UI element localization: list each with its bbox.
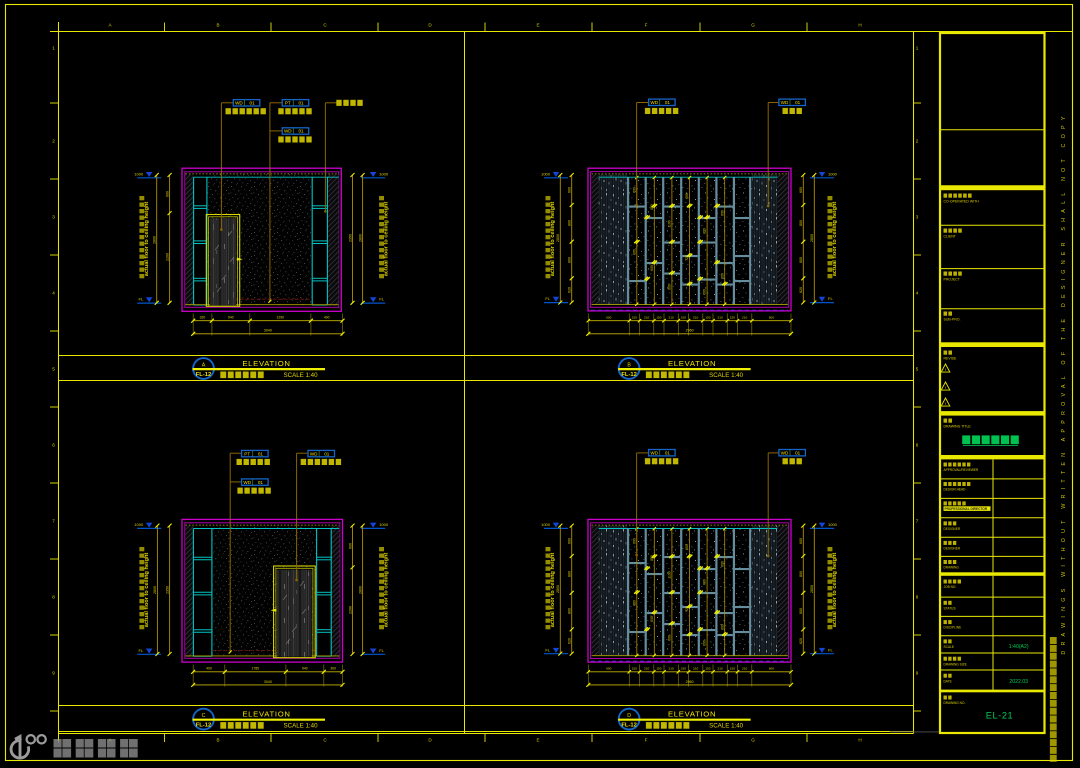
svg-text:320: 320 [200, 316, 206, 320]
svg-text:150: 150 [730, 667, 735, 671]
svg-text:600: 600 [668, 284, 672, 290]
svg-text:600: 600 [703, 640, 707, 646]
svg-text:C: C [202, 713, 206, 719]
svg-text:2022.03: 2022.03 [1009, 679, 1028, 685]
svg-text:1000: 1000 [134, 171, 144, 176]
svg-text:DISCIPLINE: DISCIPLINE [944, 626, 962, 630]
svg-text:150: 150 [705, 316, 710, 320]
svg-text:2800: 2800 [810, 234, 814, 242]
svg-text:2: 2 [52, 139, 55, 144]
svg-text:E: E [536, 738, 539, 743]
svg-text:SCALE 1:40: SCALE 1:40 [709, 722, 744, 729]
svg-text:1785: 1785 [252, 667, 260, 671]
svg-text:01: 01 [258, 451, 264, 456]
svg-text:2960: 2960 [686, 680, 694, 684]
svg-text:600: 600 [650, 616, 654, 622]
svg-text:ELEVATION: ELEVATION [242, 359, 290, 368]
svg-text:FL: FL [379, 297, 384, 302]
svg-text:800: 800 [568, 257, 572, 263]
svg-text:600: 600 [799, 187, 803, 193]
svg-text:1000: 1000 [134, 522, 144, 527]
svg-text:DRAWING NO.: DRAWING NO. [944, 701, 966, 705]
svg-text:4: 4 [52, 291, 55, 296]
svg-text:800: 800 [799, 220, 803, 226]
svg-text:actual floor to ceiling height: actual floor to ceiling height [550, 202, 556, 277]
svg-text:1100: 1100 [668, 220, 672, 227]
svg-text:ELEVATION: ELEVATION [668, 710, 716, 719]
svg-text:800: 800 [568, 220, 572, 226]
svg-text:1: 1 [916, 46, 919, 51]
svg-text:actual floor to ceiling height: actual floor to ceiling height [550, 553, 556, 628]
svg-text:F: F [645, 23, 648, 28]
svg-text:FL: FL [828, 647, 833, 652]
svg-text:150: 150 [632, 316, 637, 320]
svg-text:210: 210 [669, 316, 674, 320]
svg-text:1000: 1000 [541, 522, 551, 527]
svg-text:150: 150 [681, 316, 686, 320]
svg-text:150: 150 [681, 667, 686, 671]
svg-text:800: 800 [720, 273, 724, 279]
svg-text:800: 800 [799, 571, 803, 577]
svg-text:FL-12: FL-12 [196, 723, 211, 729]
svg-text:210: 210 [644, 316, 649, 320]
svg-text:800: 800 [568, 571, 572, 577]
svg-text:150: 150 [705, 667, 710, 671]
svg-text:400: 400 [206, 667, 212, 671]
svg-text:5: 5 [52, 367, 55, 372]
svg-text:PT: PT [244, 451, 250, 456]
svg-text:9: 9 [916, 671, 919, 676]
svg-text:210: 210 [693, 667, 698, 671]
svg-text:01: 01 [665, 100, 671, 105]
svg-text:G: G [751, 23, 755, 28]
svg-text:800: 800 [632, 249, 636, 255]
svg-text:SCALE 1:40: SCALE 1:40 [283, 372, 318, 379]
svg-text:5: 5 [916, 367, 919, 372]
svg-text:PROFESSIONAL DIRECTOR: PROFESSIONAL DIRECTOR [945, 507, 988, 511]
svg-text:620: 620 [799, 287, 803, 293]
svg-text:FL-12: FL-12 [621, 372, 636, 378]
svg-text:STATUS: STATUS [944, 606, 956, 610]
svg-text:800: 800 [799, 608, 803, 614]
svg-text:01: 01 [665, 450, 671, 455]
svg-text:JOB NO.: JOB NO. [944, 585, 957, 589]
svg-text:3040: 3040 [264, 329, 272, 333]
svg-text:FL: FL [139, 648, 144, 653]
svg-text:1000: 1000 [379, 522, 389, 527]
svg-text:600: 600 [632, 538, 636, 544]
svg-text:actual floor to ceiling height: actual floor to ceiling height [832, 202, 838, 277]
svg-text:600: 600 [799, 538, 803, 544]
svg-text:600: 600 [165, 191, 169, 197]
svg-text:1: 1 [52, 46, 55, 51]
svg-text:FL-12: FL-12 [621, 723, 636, 729]
svg-text:E: E [536, 23, 539, 28]
svg-text:!: ! [945, 367, 946, 372]
svg-text:WD: WD [284, 129, 292, 134]
svg-text:WD: WD [243, 480, 251, 485]
svg-text:FL: FL [828, 296, 833, 301]
svg-text:210: 210 [693, 316, 698, 320]
svg-text:actual floor to ceiling height: actual floor to ceiling height [144, 202, 150, 277]
svg-text:F: F [645, 738, 648, 743]
svg-text:DRAWINGS WITHOUT WRITTEN APPRO: DRAWINGS WITHOUT WRITTEN APPROVAL OF THE… [1061, 111, 1067, 654]
svg-text:400: 400 [324, 316, 330, 320]
svg-text:2800: 2800 [153, 586, 157, 594]
svg-text:600: 600 [720, 210, 724, 216]
svg-text:EL-21: EL-21 [986, 711, 1014, 721]
svg-text:FL: FL [545, 647, 550, 652]
svg-text:9: 9 [52, 671, 55, 676]
svg-text:SUB-PRO.: SUB-PRO. [944, 317, 961, 321]
svg-text:WD: WD [781, 100, 789, 105]
svg-text:8: 8 [916, 595, 919, 600]
svg-text:B: B [216, 738, 219, 743]
svg-text:actual floor to ceiling height: actual floor to ceiling height [384, 553, 390, 628]
svg-text:800: 800 [632, 600, 636, 606]
svg-text:1000: 1000 [379, 171, 389, 176]
svg-text:600: 600 [668, 635, 672, 641]
svg-text:2800: 2800 [358, 586, 362, 594]
svg-text:A: A [202, 362, 206, 368]
svg-text:2800: 2800 [153, 236, 157, 244]
svg-text:REVISE: REVISE [944, 356, 958, 360]
svg-text:3: 3 [52, 215, 55, 220]
svg-text:ELEVATION: ELEVATION [668, 359, 716, 368]
svg-text:SCALE: SCALE [944, 645, 954, 649]
svg-text:01: 01 [298, 129, 304, 134]
svg-text:!: ! [945, 401, 946, 406]
svg-text:2350: 2350 [348, 234, 352, 242]
svg-text:600: 600 [685, 193, 689, 199]
svg-text:2: 2 [916, 139, 919, 144]
svg-text:FL: FL [545, 296, 550, 301]
svg-text:8: 8 [52, 595, 55, 600]
svg-text:150: 150 [656, 667, 661, 671]
svg-text:600: 600 [348, 543, 352, 549]
svg-text:DRAWING: DRAWING [944, 566, 960, 570]
svg-text:600: 600 [568, 187, 572, 193]
svg-text:DATE: DATE [944, 679, 952, 683]
svg-text:800: 800 [720, 624, 724, 630]
svg-text:1100: 1100 [668, 571, 672, 578]
svg-text:600: 600 [632, 187, 636, 193]
svg-text:DESIGNER: DESIGNER [944, 527, 961, 531]
svg-text:600: 600 [769, 316, 774, 320]
svg-text:1000: 1000 [828, 171, 838, 176]
svg-text:PT: PT [285, 101, 291, 106]
svg-text:SCALE 1:40: SCALE 1:40 [283, 722, 318, 729]
svg-text:210: 210 [718, 316, 723, 320]
svg-text:WD: WD [781, 450, 789, 455]
svg-text:1000: 1000 [828, 522, 838, 527]
svg-text:3: 3 [916, 215, 919, 220]
svg-text:940: 940 [228, 316, 234, 320]
svg-text:210: 210 [669, 667, 674, 671]
svg-text:600: 600 [685, 544, 689, 550]
svg-text:FL: FL [139, 297, 144, 302]
svg-text:WD: WD [310, 451, 318, 456]
svg-text:600: 600 [703, 289, 707, 295]
svg-text:01: 01 [795, 100, 801, 105]
svg-text:210: 210 [718, 667, 723, 671]
svg-text:WD: WD [235, 101, 243, 106]
svg-text:WD: WD [650, 100, 658, 105]
svg-text:2800: 2800 [810, 585, 814, 593]
svg-text:D: D [627, 713, 631, 719]
svg-text:ELEVATION: ELEVATION [242, 710, 290, 719]
svg-text:600: 600 [606, 667, 611, 671]
svg-text:7: 7 [916, 519, 919, 524]
svg-text:01: 01 [795, 450, 801, 455]
svg-text:600: 600 [568, 538, 572, 544]
svg-text:940: 940 [302, 667, 308, 671]
svg-text:DESIGN HEAD: DESIGN HEAD [944, 488, 967, 492]
svg-text:210: 210 [742, 667, 747, 671]
svg-text:FL: FL [379, 648, 384, 653]
svg-text:2800: 2800 [556, 234, 560, 242]
svg-text:actual floor to ceiling height: actual floor to ceiling height [144, 553, 150, 628]
svg-text:600: 600 [720, 561, 724, 567]
svg-text:620: 620 [568, 287, 572, 293]
svg-text:SCALE 1:40: SCALE 1:40 [709, 372, 744, 379]
svg-text:01: 01 [324, 451, 330, 456]
svg-text:2960: 2960 [686, 329, 694, 333]
svg-text:2200: 2200 [348, 606, 352, 614]
svg-text:600: 600 [650, 265, 654, 271]
svg-text:01: 01 [298, 101, 304, 106]
svg-text:H: H [858, 738, 861, 743]
svg-text:1290: 1290 [277, 316, 285, 320]
svg-text:4: 4 [916, 291, 919, 296]
svg-text:G: G [751, 738, 755, 743]
svg-text:DESIGNER: DESIGNER [944, 547, 961, 551]
svg-text:800: 800 [568, 608, 572, 614]
svg-text:PROJECT: PROJECT [944, 277, 961, 281]
svg-text:800: 800 [703, 579, 707, 585]
svg-text:2350: 2350 [165, 586, 169, 594]
svg-text:DRAWING TITLE: DRAWING TITLE [944, 424, 972, 428]
svg-text:!: ! [945, 385, 946, 390]
svg-text:210: 210 [644, 667, 649, 671]
svg-text:150: 150 [632, 667, 637, 671]
svg-text:620: 620 [568, 638, 572, 644]
svg-text:800: 800 [703, 228, 707, 234]
svg-text:CO-OPERATED WITH: CO-OPERATED WITH [944, 199, 980, 203]
svg-text:H: H [858, 23, 861, 28]
svg-text:2200: 2200 [165, 253, 169, 261]
svg-text:150: 150 [656, 316, 661, 320]
svg-text:800: 800 [799, 257, 803, 263]
svg-text:1:40(A2): 1:40(A2) [1009, 644, 1029, 650]
svg-text:150: 150 [730, 316, 735, 320]
svg-text:2800: 2800 [358, 234, 362, 242]
svg-text:6: 6 [52, 443, 55, 448]
svg-text:600: 600 [606, 316, 611, 320]
svg-text:600: 600 [769, 667, 774, 671]
svg-text:DRAWING SIZE: DRAWING SIZE [944, 662, 967, 666]
svg-text:01: 01 [250, 101, 256, 106]
svg-text:APPROVAL/REVIEWER: APPROVAL/REVIEWER [944, 468, 980, 472]
svg-text:2800: 2800 [556, 585, 560, 593]
svg-text:01: 01 [258, 480, 264, 485]
svg-text:7: 7 [52, 519, 55, 524]
svg-text:WD: WD [650, 450, 658, 455]
svg-text:620: 620 [799, 638, 803, 644]
svg-text:B: B [216, 23, 219, 28]
svg-text:FL-12: FL-12 [196, 372, 211, 378]
svg-text:3040: 3040 [264, 680, 272, 684]
svg-text:B: B [627, 362, 631, 368]
svg-text:1000: 1000 [541, 171, 551, 176]
svg-text:actual floor to ceiling height: actual floor to ceiling height [384, 202, 390, 277]
svg-text:actual floor to ceiling height: actual floor to ceiling height [832, 553, 838, 628]
svg-text:6: 6 [916, 443, 919, 448]
svg-text:210: 210 [742, 316, 747, 320]
svg-text:300: 300 [330, 667, 336, 671]
svg-text:CLIENT: CLIENT [944, 234, 957, 238]
